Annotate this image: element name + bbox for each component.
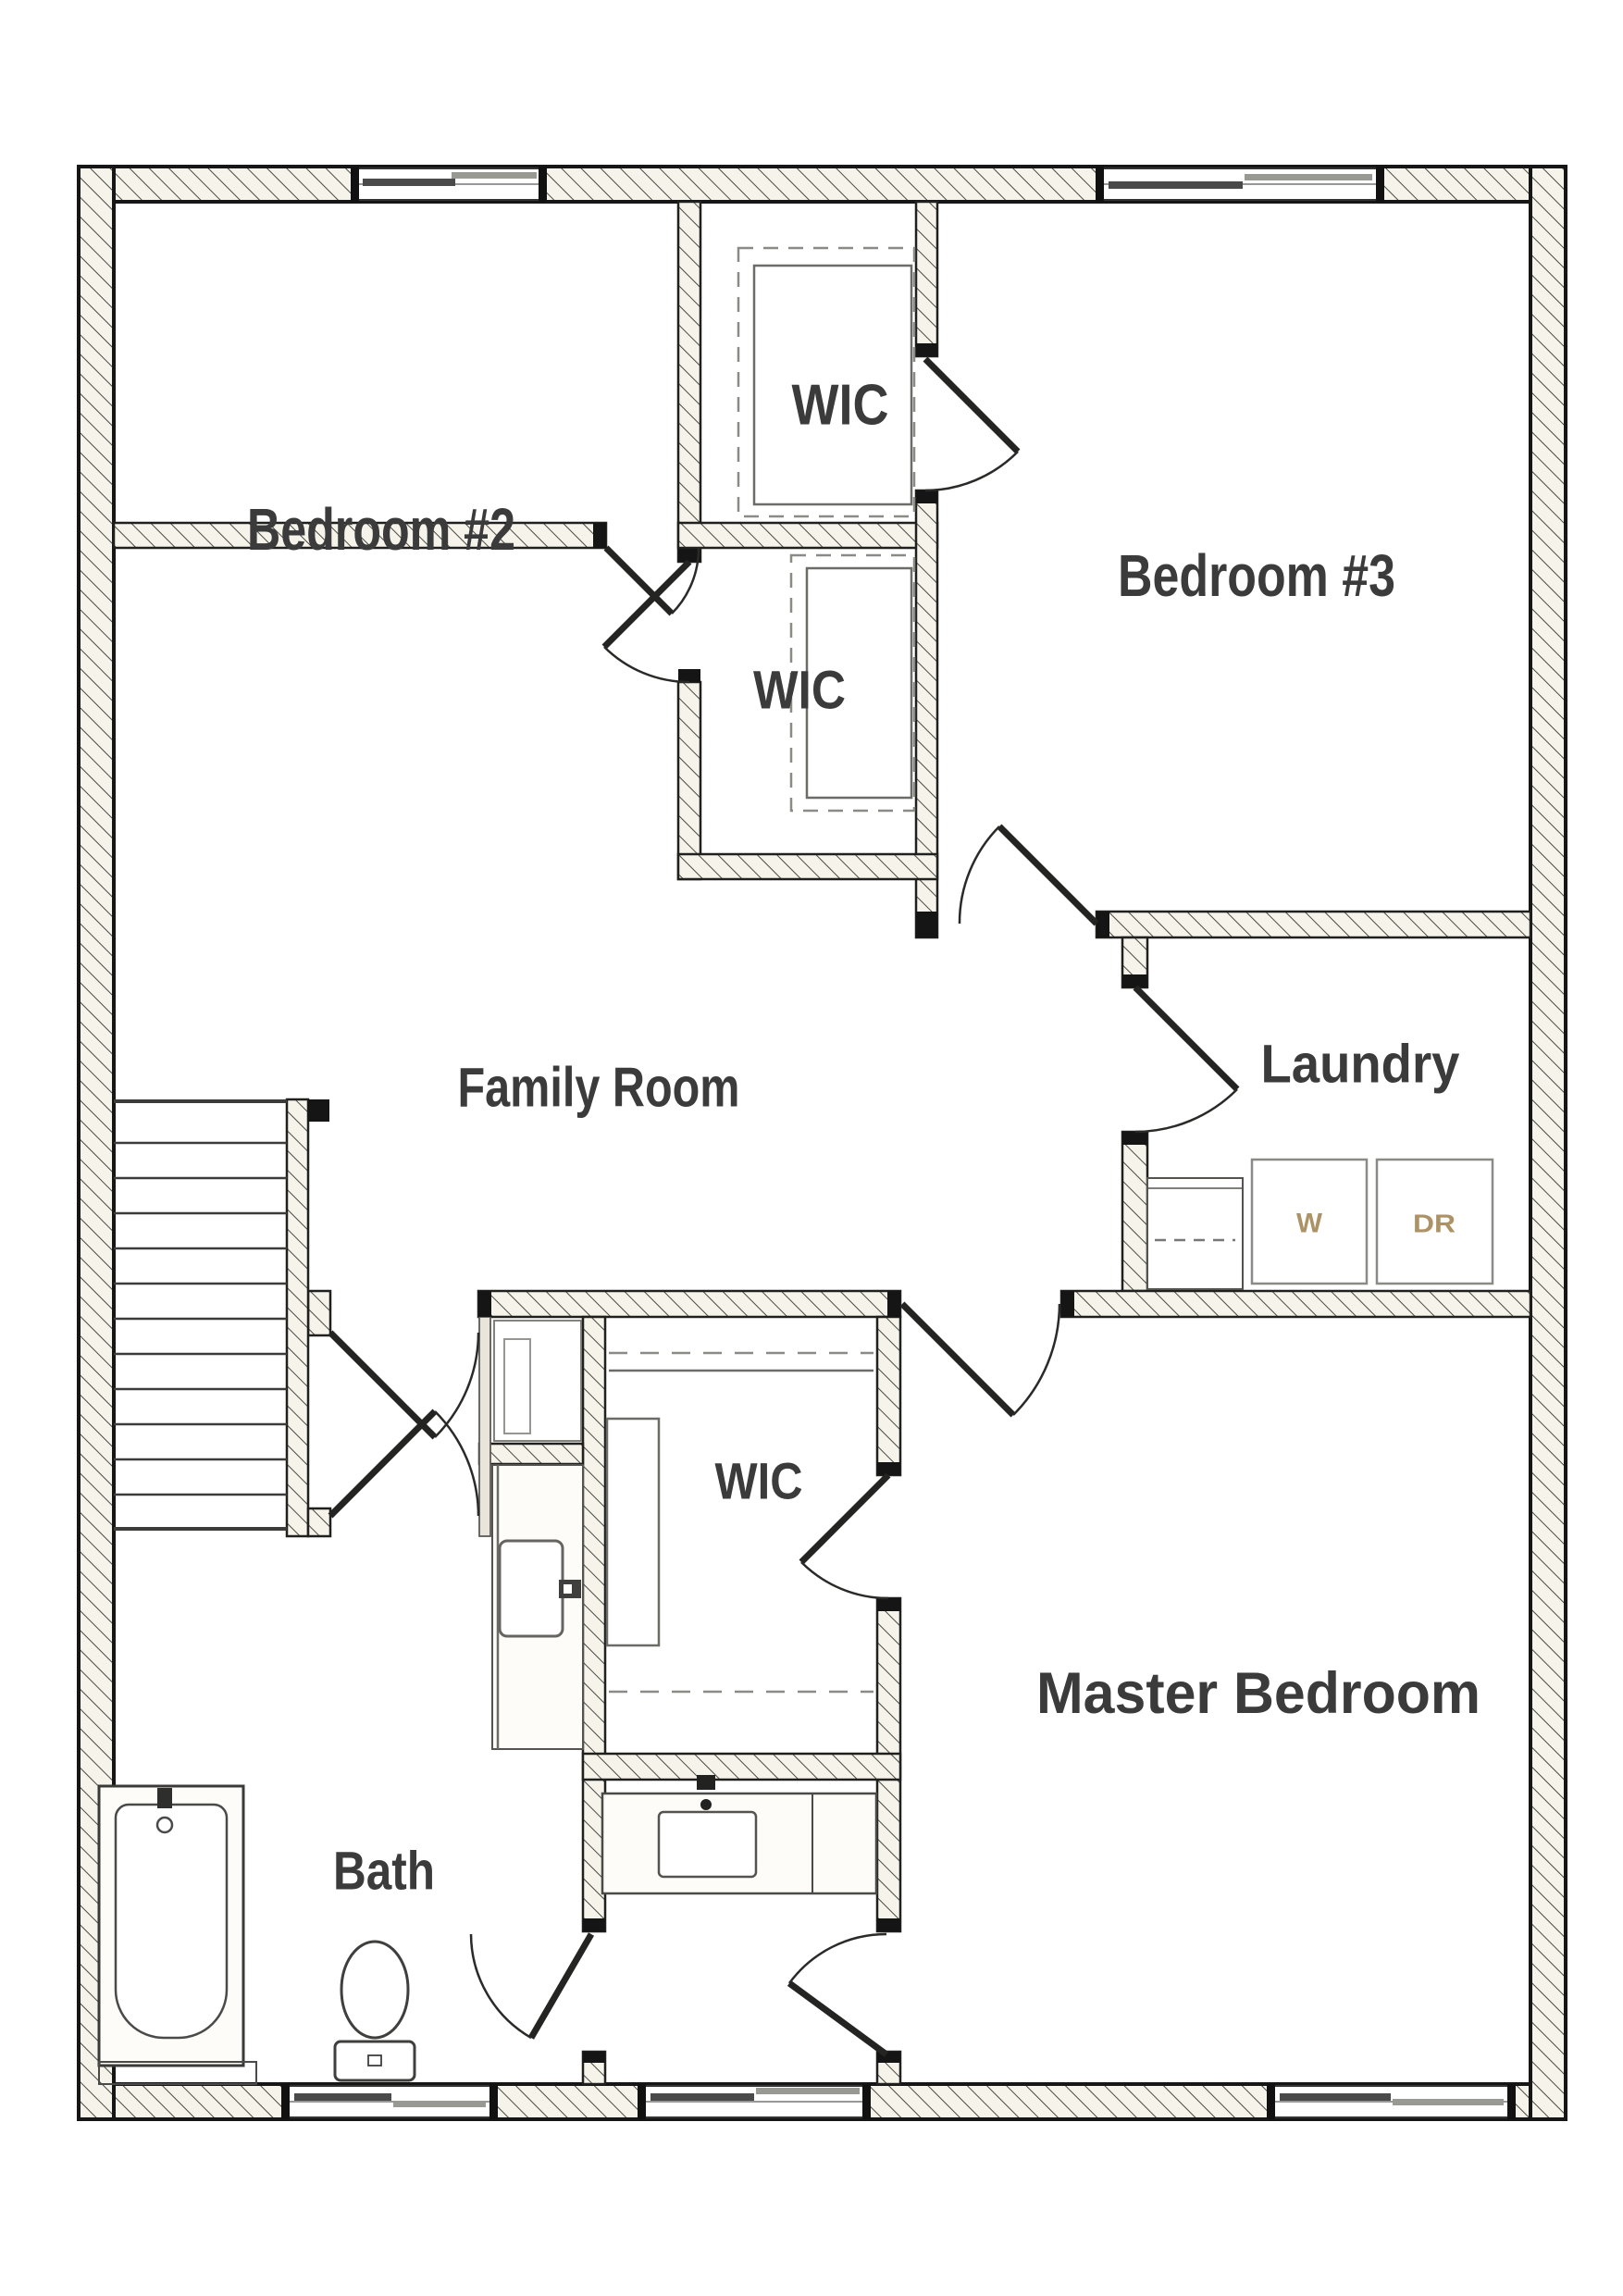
master-bath-window — [638, 2084, 871, 2119]
bath-window — [281, 2084, 498, 2119]
master-sink — [659, 1812, 756, 1877]
vestibule-top-door — [330, 1333, 478, 1437]
toilet — [335, 1942, 415, 2080]
bedroom2-window — [351, 167, 547, 202]
master-bath-door — [789, 1934, 886, 2054]
dryer: DR — [1377, 1160, 1493, 1284]
laundry-label: Laundry — [1261, 1035, 1460, 1095]
bath-door — [471, 1934, 591, 2038]
bath-sink — [500, 1541, 563, 1636]
washer: W — [1252, 1160, 1367, 1284]
family-room-label: Family Room — [458, 1057, 740, 1119]
master-bedroom-window — [1267, 2084, 1516, 2119]
bedroom2-label: Bedroom #2 — [247, 496, 515, 563]
floor-plan-page: W DR — [0, 0, 1623, 2296]
wic-master-door — [801, 1475, 888, 1598]
stairs — [114, 1101, 287, 1529]
master-bath-vanity — [602, 1775, 876, 1893]
wic-top-door — [925, 359, 1018, 490]
vestibule-bottom-door — [330, 1411, 478, 1516]
bedroom3-door — [960, 826, 1096, 924]
washer-label: W — [1296, 1209, 1323, 1239]
floor-plan-drawing: W DR — [0, 0, 1623, 2296]
laundry-cabinet — [1147, 1178, 1243, 1289]
bath-vanity — [492, 1465, 583, 1749]
bedroom3-window — [1096, 167, 1384, 202]
master-sink-faucet-icon — [697, 1775, 715, 1790]
tub-faucet-icon — [157, 1788, 172, 1808]
wic-mid-label: WIC — [753, 661, 846, 721]
bathtub — [99, 1786, 256, 2084]
laundry-door — [1135, 987, 1237, 1132]
master-bedroom-door — [902, 1304, 1059, 1415]
bedroom3-label: Bedroom #3 — [1118, 542, 1395, 609]
wic-master-shelving — [607, 1353, 873, 1692]
wic-master-label: WIC — [715, 1452, 803, 1510]
vestibule-partition-wall — [479, 1317, 490, 1536]
linen-closet — [494, 1321, 581, 1441]
dryer-label: DR — [1413, 1210, 1456, 1238]
bath-label: Bath — [333, 1842, 435, 1902]
wic-mid-door — [604, 562, 689, 682]
wic-top-label: WIC — [792, 374, 889, 438]
master-bedroom-label: Master Bedroom — [1036, 1661, 1481, 1726]
